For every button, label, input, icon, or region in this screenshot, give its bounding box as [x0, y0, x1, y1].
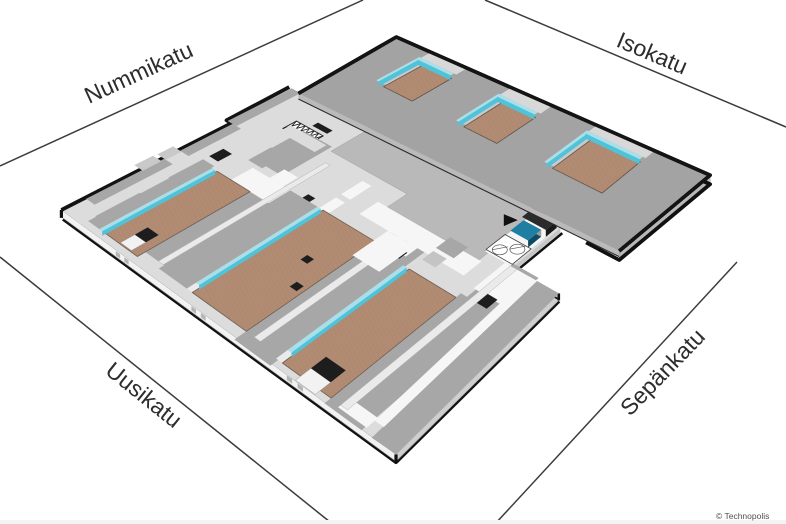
svg-text:© Technopolis: © Technopolis	[716, 511, 769, 521]
